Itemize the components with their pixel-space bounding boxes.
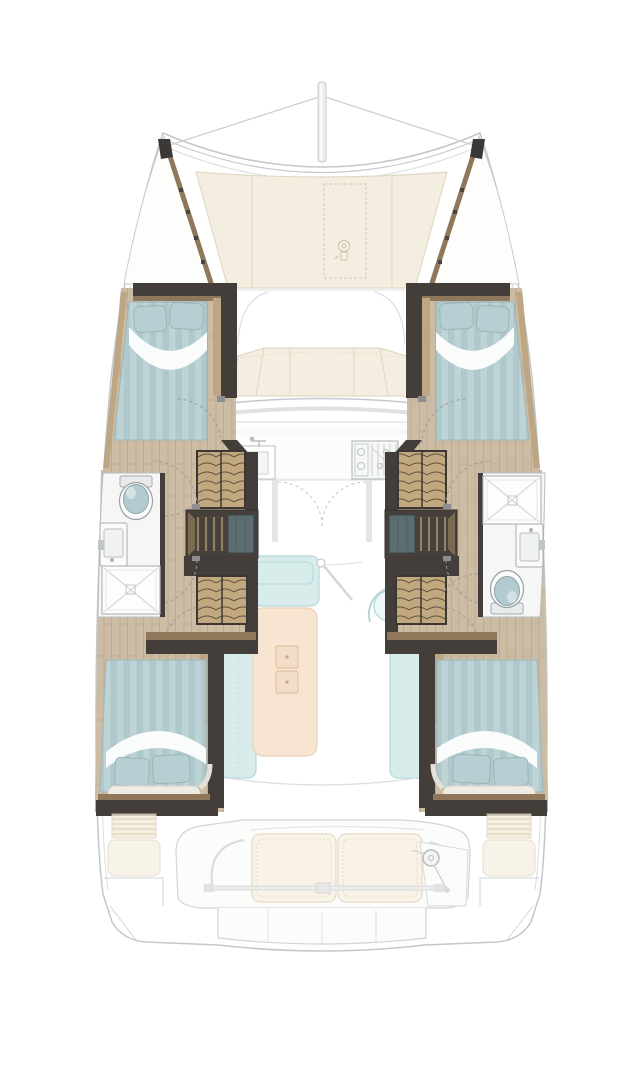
wardrobe-lower [197,576,247,624]
salon-table [253,608,317,756]
catamaran-floorplan [0,0,643,1080]
mast [318,82,326,162]
transom-platform [218,908,426,946]
galley-door-jamb-port [272,480,278,542]
cockpit-bench-cushion-right [338,834,422,902]
deck-seat [108,840,160,876]
sink-icon [98,523,127,566]
toilet-icon [120,476,153,520]
foredeck [196,172,447,288]
deck-locker [112,814,156,838]
port-companionway-steps [186,510,258,558]
rigging-line-port [167,96,322,146]
shower-icon [102,566,160,614]
salon-sofa-top [249,556,319,606]
forward-seating [232,348,412,396]
port-forward-bed [114,302,207,440]
galley-door-jamb-starboard [366,480,372,542]
rigging-line-starboard [322,96,476,146]
port-aft-bed [100,660,210,802]
cockpit [176,820,470,908]
wardrobe-upper [197,451,245,508]
catamaran-floorplan-page [0,0,643,1080]
